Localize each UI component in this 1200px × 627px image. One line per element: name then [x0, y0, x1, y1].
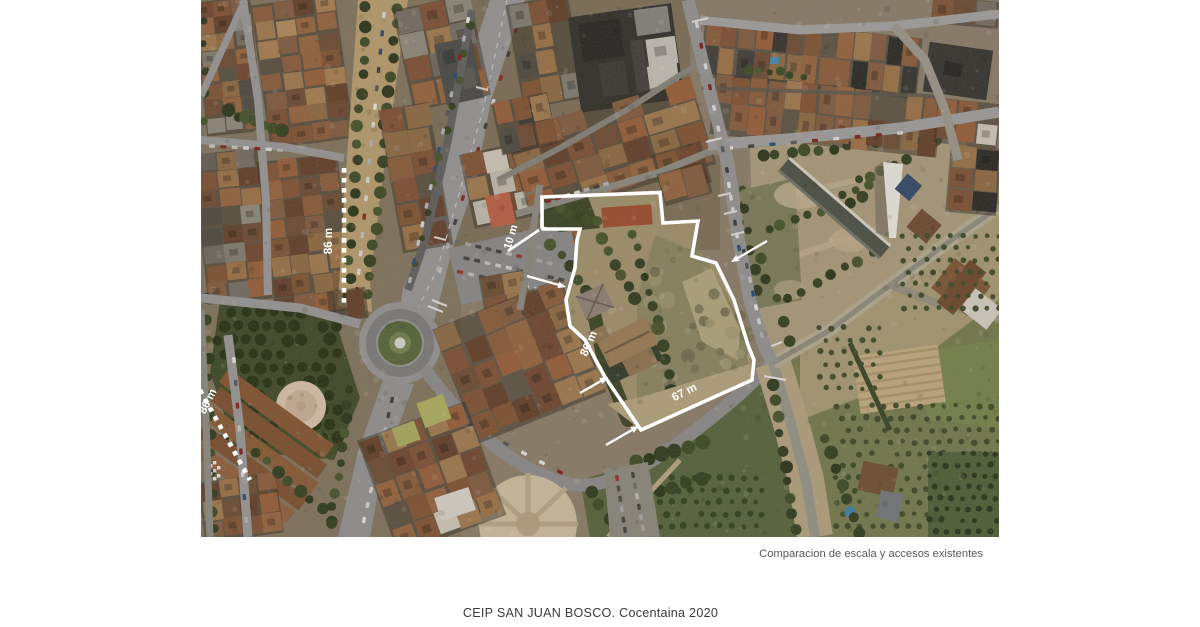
svg-text:86 m: 86 m	[323, 228, 335, 254]
